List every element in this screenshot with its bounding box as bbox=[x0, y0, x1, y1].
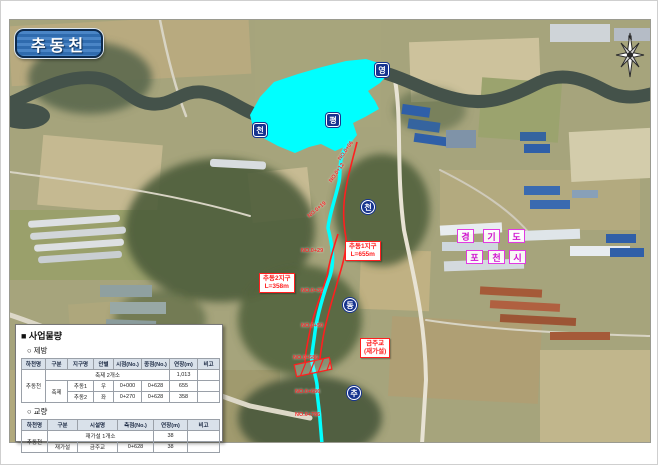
levee-table: 하천명 구분 지구명 안별 시점(No.) 종점(No.) 연장(m) 비고 추… bbox=[21, 358, 220, 403]
stream-name-marker: 천 bbox=[361, 200, 375, 214]
stream-name-char: 천 bbox=[364, 202, 371, 213]
river-name-marker: 평 bbox=[326, 113, 340, 127]
col-header: 구분 bbox=[46, 359, 68, 370]
col-header: 시점(No.) bbox=[114, 359, 142, 370]
cell: 금주교 bbox=[78, 442, 118, 453]
station-label: NO.0+686 bbox=[295, 389, 320, 395]
river-name-marker: 천 bbox=[253, 123, 267, 137]
cell: 재가설 1개소 bbox=[48, 431, 154, 442]
col-header: 연장(m) bbox=[154, 420, 188, 431]
col-header: 비고 bbox=[188, 420, 220, 431]
map-title-badge: 추동천 bbox=[15, 29, 103, 58]
cell: 추동천 bbox=[22, 431, 48, 453]
province-label-char: 도 bbox=[508, 229, 525, 243]
cell: 축제 2개소 bbox=[46, 370, 170, 381]
callout-length: L=655m bbox=[349, 251, 377, 259]
stream-name-marker: 동 bbox=[343, 298, 357, 312]
col-header: 비고 bbox=[198, 359, 220, 370]
table-row: 추동천 재가설 1개소 38 bbox=[22, 431, 220, 442]
cell: 38 bbox=[154, 431, 188, 442]
levee-section-heading: ○ 제방 bbox=[27, 345, 217, 356]
col-header: 구분 bbox=[48, 420, 78, 431]
cell: 0+628 bbox=[142, 392, 170, 403]
river-name-char: 천 bbox=[256, 125, 263, 136]
city-label-char: 시 bbox=[509, 250, 526, 264]
city-label-char: 포 bbox=[466, 250, 483, 264]
cell: 38 bbox=[154, 442, 188, 453]
callout-title: 추동2지구 bbox=[263, 275, 291, 283]
callout-length: L=358m bbox=[263, 283, 291, 291]
cell bbox=[188, 442, 220, 453]
callout-district1: 추동1지구 L=655m bbox=[345, 241, 381, 261]
cell: 358 bbox=[170, 392, 198, 403]
bridge-section-heading: ○ 교량 bbox=[27, 406, 217, 417]
river-name-marker: 영 bbox=[375, 63, 389, 77]
station-label: NO.0+35 bbox=[301, 288, 323, 294]
cell: 우 bbox=[94, 381, 114, 392]
bridge-table: 하천명 구분 시설명 측점(No.) 연장(m) 비고 추동천 재가설 1개소 … bbox=[21, 419, 220, 453]
table-header-row: 하천명 구분 시설명 측점(No.) 연장(m) 비고 bbox=[22, 420, 220, 431]
cell: 655 bbox=[170, 381, 198, 392]
cell: 재가설 bbox=[48, 442, 78, 453]
city-label-char: 천 bbox=[488, 250, 505, 264]
callout-district2: 추동2지구 L=358m bbox=[259, 273, 295, 293]
callout-bridge: 금주교 (재가설) bbox=[360, 338, 390, 358]
callout-title: 금주교 bbox=[364, 340, 386, 348]
river-name-char: 평 bbox=[329, 115, 336, 126]
callout-note: (재가설) bbox=[364, 348, 386, 356]
col-header: 시설명 bbox=[78, 420, 118, 431]
compass-north-label: N bbox=[628, 36, 632, 42]
col-header: 지구명 bbox=[68, 359, 94, 370]
cell: 추동2 bbox=[68, 392, 94, 403]
table-row: 축제 추동1 우 0+000 0+628 655 bbox=[22, 381, 220, 392]
table-header-row: 하천명 구분 지구명 안별 시점(No.) 종점(No.) 연장(m) 비고 bbox=[22, 359, 220, 370]
province-label-char: 기 bbox=[483, 229, 500, 243]
station-label: NO.0+50 bbox=[301, 323, 323, 329]
river-name-char: 영 bbox=[378, 65, 385, 76]
col-header: 하천명 bbox=[22, 359, 46, 370]
station-label: NO.0+29 bbox=[301, 248, 323, 254]
cell bbox=[198, 392, 220, 403]
station-label: NO.0+786 bbox=[295, 412, 320, 418]
plan-sheet: 영 평 천 천 동 추 경 기 도 포 천 시 추동1지구 L=655m 추동2… bbox=[0, 0, 658, 465]
cell: 좌 bbox=[94, 392, 114, 403]
cell: 1,013 bbox=[170, 370, 198, 381]
col-header: 안별 bbox=[94, 359, 114, 370]
cell: 0+628 bbox=[142, 381, 170, 392]
col-header: 종점(No.) bbox=[142, 359, 170, 370]
table-row: 추동천 축제 2개소 1,013 bbox=[22, 370, 220, 381]
cell: 축제 bbox=[46, 381, 68, 403]
province-label-char: 경 bbox=[457, 229, 474, 243]
cell: 0+628 bbox=[118, 442, 154, 453]
stream-name-marker: 추 bbox=[347, 386, 361, 400]
col-header: 연장(m) bbox=[170, 359, 198, 370]
cell: 0+270 bbox=[114, 392, 142, 403]
compass-icon: N bbox=[611, 31, 649, 83]
station-label: NO.0+586 bbox=[293, 355, 318, 361]
table-row: 재가설 금주교 0+628 38 bbox=[22, 442, 220, 453]
col-header: 측점(No.) bbox=[118, 420, 154, 431]
stream-name-char: 추 bbox=[350, 388, 357, 399]
cell: 0+000 bbox=[114, 381, 142, 392]
panel-title: ■ 사업물량 bbox=[21, 329, 217, 342]
callout-title: 추동1지구 bbox=[349, 243, 377, 251]
col-header: 하천명 bbox=[22, 420, 48, 431]
stream-name-char: 동 bbox=[346, 300, 353, 311]
map-title: 추동천 bbox=[31, 32, 87, 56]
cell bbox=[188, 431, 220, 442]
cell: 추동1 bbox=[68, 381, 94, 392]
quantities-panel: ■ 사업물량 ○ 제방 하천명 구분 지구명 안별 시점(No.) 종점(No.… bbox=[15, 324, 223, 442]
cell bbox=[198, 370, 220, 381]
cell: 추동천 bbox=[22, 370, 46, 403]
cell bbox=[198, 381, 220, 392]
